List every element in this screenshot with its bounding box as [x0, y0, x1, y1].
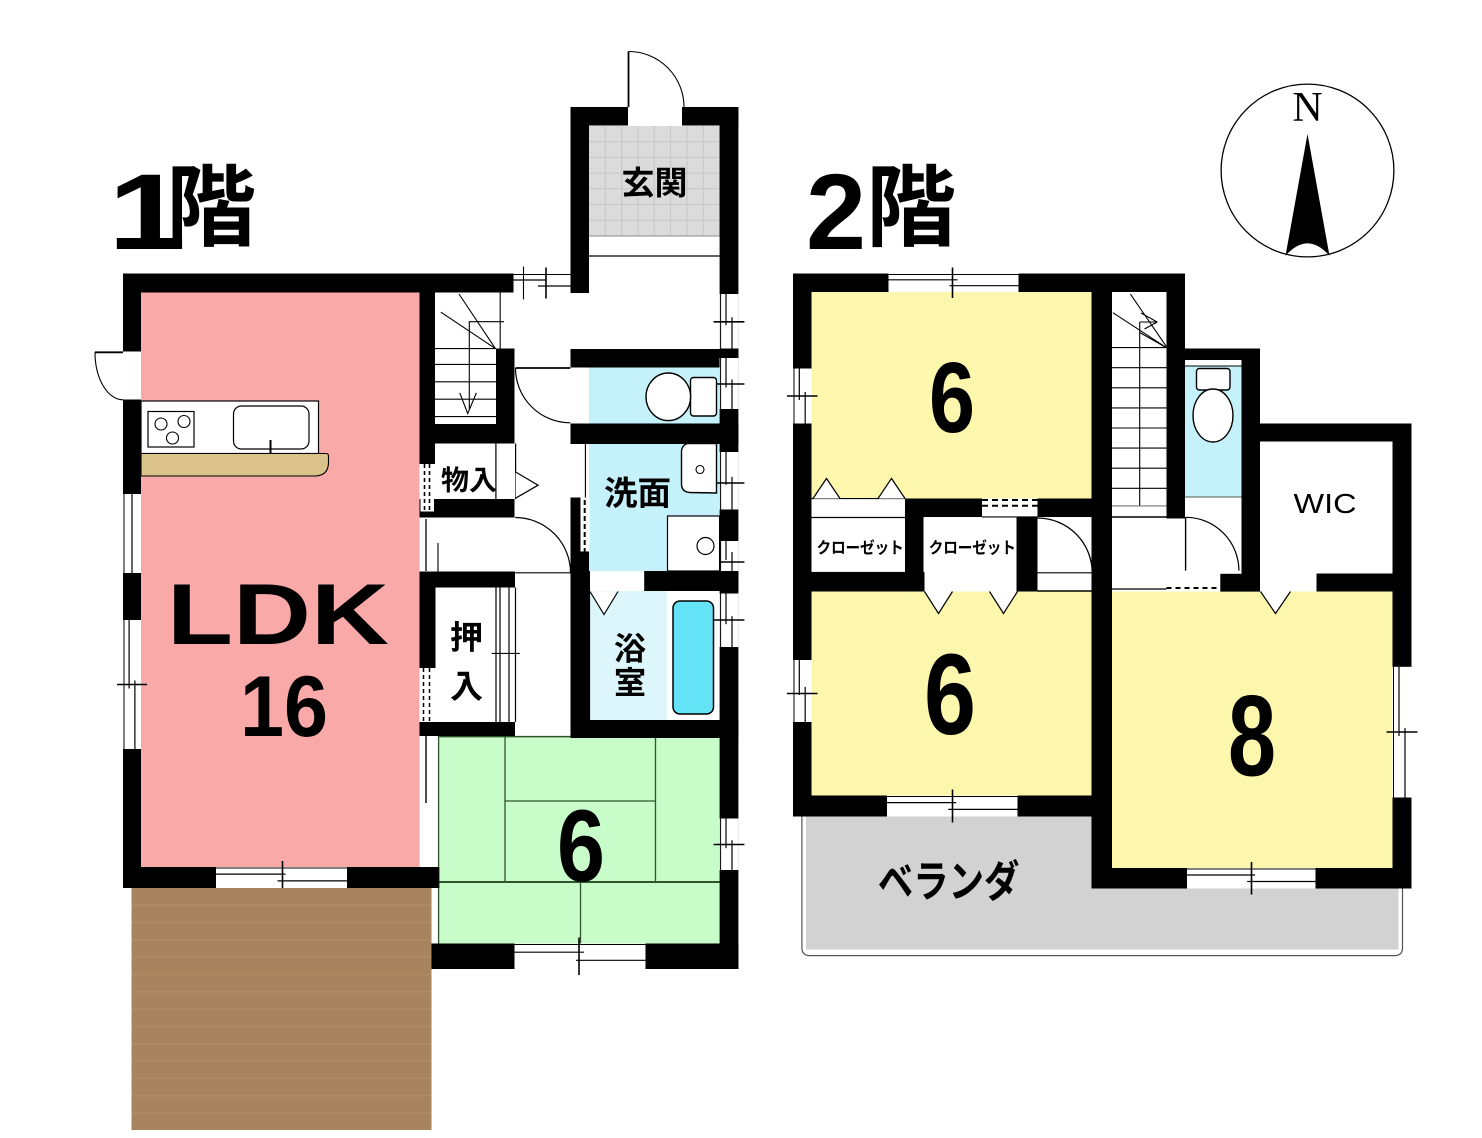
- svg-text:8: 8: [1228, 673, 1276, 801]
- svg-text:6: 6: [929, 342, 975, 454]
- svg-text:6: 6: [557, 789, 605, 903]
- svg-text:16: 16: [240, 659, 328, 755]
- svg-text:2: 2: [806, 151, 866, 272]
- svg-text:6: 6: [924, 631, 976, 759]
- svg-text:N: N: [1292, 85, 1322, 131]
- svg-text:WIC: WIC: [1294, 488, 1357, 519]
- svg-text:LDK: LDK: [167, 567, 389, 663]
